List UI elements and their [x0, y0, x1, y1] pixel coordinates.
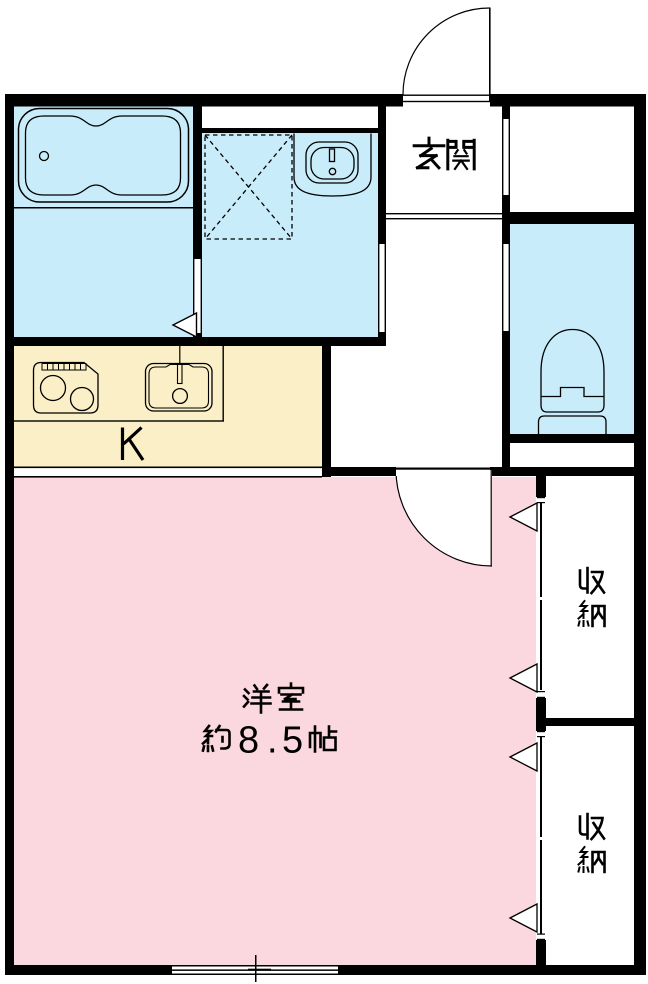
- svg-text:8: 8: [238, 720, 259, 762]
- svg-text:.: .: [267, 720, 278, 762]
- svg-text:5: 5: [282, 720, 303, 762]
